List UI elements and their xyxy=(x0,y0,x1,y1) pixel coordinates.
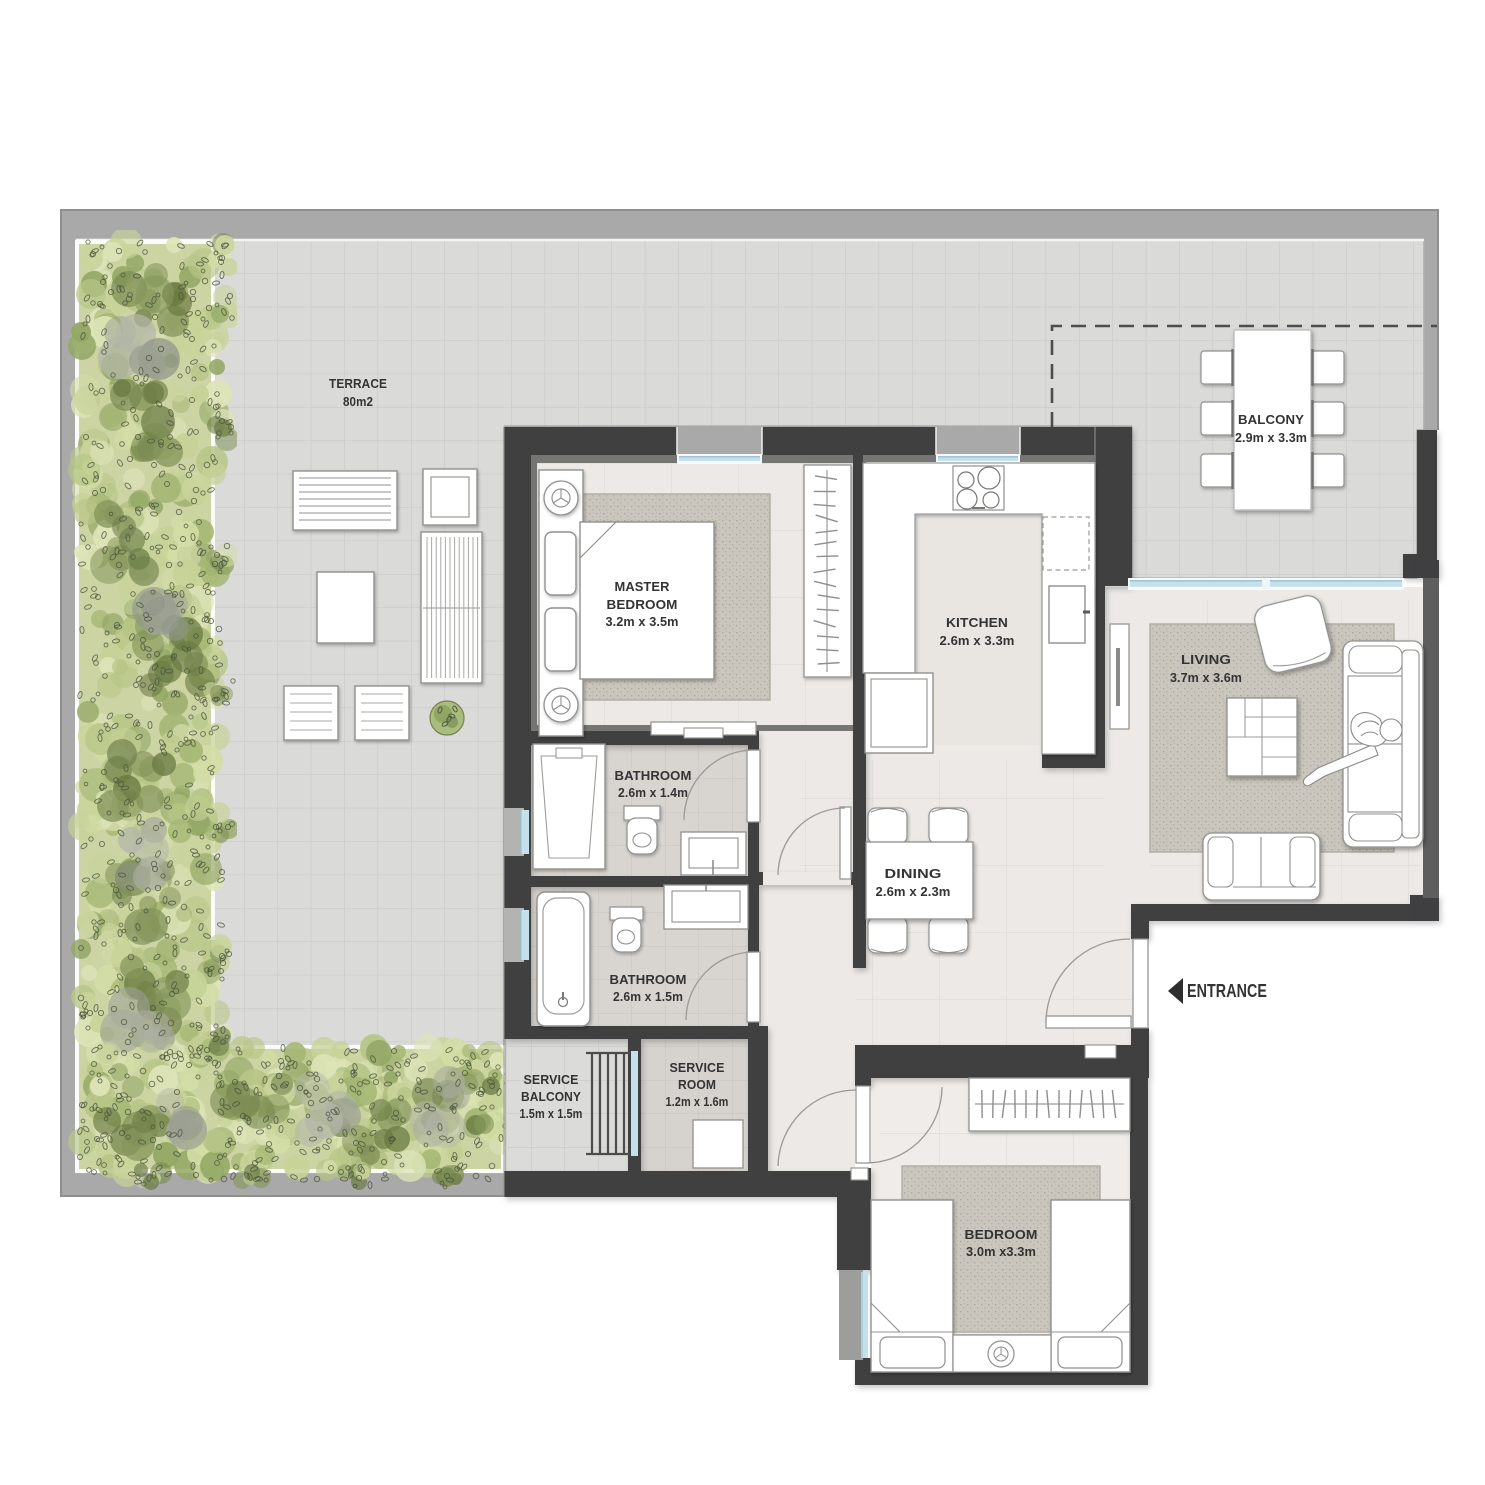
svg-text:BALCONY: BALCONY xyxy=(521,1089,581,1104)
svg-text:2.6m x 1.5m: 2.6m x 1.5m xyxy=(613,989,683,1004)
svg-text:BALCONY: BALCONY xyxy=(1238,412,1304,427)
svg-text:3.7m x 3.6m: 3.7m x 3.6m xyxy=(1170,670,1242,685)
svg-text:SERVICE: SERVICE xyxy=(524,1072,579,1087)
svg-text:TERRACE: TERRACE xyxy=(329,376,387,391)
svg-text:BATHROOM: BATHROOM xyxy=(615,768,692,783)
svg-text:3.0m x3.3m: 3.0m x3.3m xyxy=(966,1244,1036,1259)
svg-text:2.6m x 2.3m: 2.6m x 2.3m xyxy=(876,884,951,899)
svg-text:DINING: DINING xyxy=(885,866,942,881)
svg-text:MASTER: MASTER xyxy=(615,579,670,594)
svg-text:BEDROOM: BEDROOM xyxy=(607,597,678,612)
svg-text:LIVING: LIVING xyxy=(1181,652,1231,667)
svg-text:BATHROOM: BATHROOM xyxy=(610,972,687,987)
svg-text:2.6m x 3.3m: 2.6m x 3.3m xyxy=(940,633,1015,648)
svg-text:ROOM: ROOM xyxy=(678,1077,716,1092)
svg-text:2.9m x 3.3m: 2.9m x 3.3m xyxy=(1235,430,1307,445)
svg-text:SERVICE: SERVICE xyxy=(670,1060,725,1075)
svg-text:ENTRANCE: ENTRANCE xyxy=(1187,981,1267,1001)
svg-text:2.6m x 1.4m: 2.6m x 1.4m xyxy=(618,785,688,800)
svg-text:1.5m x 1.5m: 1.5m x 1.5m xyxy=(520,1106,583,1121)
svg-text:1.2m x 1.6m: 1.2m x 1.6m xyxy=(666,1094,729,1109)
svg-text:KITCHEN: KITCHEN xyxy=(946,615,1008,630)
svg-text:80m2: 80m2 xyxy=(343,394,373,409)
svg-text:BEDROOM: BEDROOM xyxy=(965,1227,1038,1242)
svg-text:3.2m x 3.5m: 3.2m x 3.5m xyxy=(606,614,679,629)
